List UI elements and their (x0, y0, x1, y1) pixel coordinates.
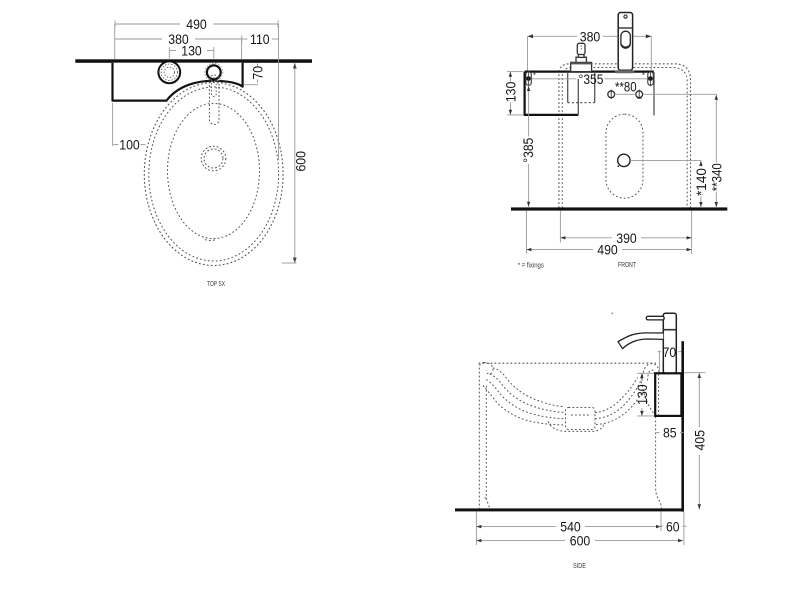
svg-text:*: * (533, 71, 536, 80)
svg-text:*: * (642, 71, 645, 80)
svg-text:°385: °385 (520, 138, 536, 163)
svg-text:100: 100 (119, 137, 140, 153)
svg-text:* = fixings: * = fixings (518, 262, 544, 269)
svg-text:405: 405 (692, 430, 708, 451)
svg-text:490: 490 (186, 16, 207, 32)
svg-text:TOP SX: TOP SX (207, 281, 225, 288)
svg-text:70: 70 (663, 344, 677, 360)
svg-text:490: 490 (597, 242, 618, 258)
svg-text:**80: **80 (615, 78, 637, 94)
svg-text:130: 130 (503, 81, 519, 102)
svg-text:°355: °355 (579, 71, 604, 87)
svg-text:600: 600 (570, 533, 591, 549)
svg-text:390: 390 (616, 230, 637, 246)
svg-text:SIDE: SIDE (573, 563, 586, 570)
svg-text:*140: *140 (693, 168, 709, 196)
svg-text:**: ** (637, 97, 643, 104)
svg-text:110: 110 (250, 31, 270, 47)
svg-text:FRONT: FRONT (618, 262, 637, 269)
svg-text:70: 70 (250, 66, 266, 80)
svg-text:600: 600 (293, 151, 309, 172)
svg-text:**340: **340 (708, 163, 724, 191)
svg-text:130: 130 (634, 384, 650, 405)
svg-text:380: 380 (580, 28, 601, 44)
svg-text:60: 60 (666, 518, 680, 534)
svg-text:130: 130 (181, 43, 202, 59)
svg-text:85: 85 (663, 425, 677, 441)
